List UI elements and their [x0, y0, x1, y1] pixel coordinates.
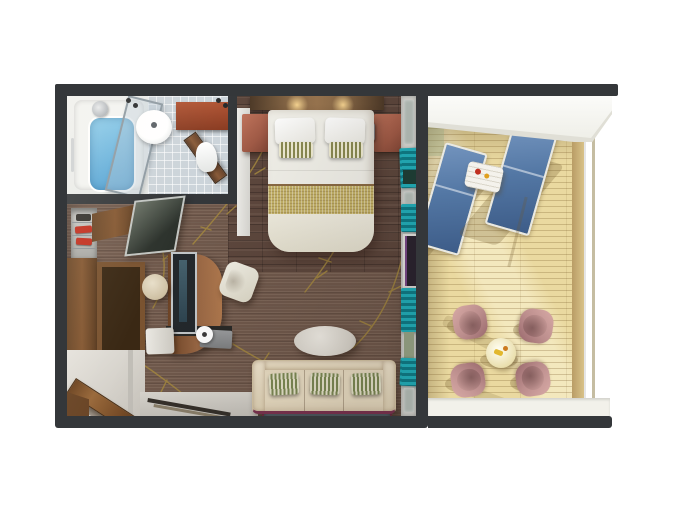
headboard-with-lights	[250, 96, 384, 110]
striped-accent-pillow-right	[329, 142, 363, 158]
deck-front-ledge	[428, 398, 610, 416]
ceiling-spot-3	[216, 98, 221, 103]
deck-edge-board	[572, 116, 584, 398]
white-pillow-left	[275, 117, 316, 144]
curtain-dark-fold	[403, 170, 416, 184]
towel-bar	[71, 138, 74, 172]
sofa-pillow-1	[268, 372, 299, 396]
closet-shelf-3	[72, 248, 96, 249]
railing-inner-line	[584, 116, 586, 398]
double-bed	[268, 110, 374, 252]
duvet-foot	[268, 214, 374, 252]
sofa-back-rail	[265, 361, 383, 370]
glass-panel-1	[404, 100, 414, 144]
drink-yellow	[484, 173, 490, 179]
sofa-pillow-3	[351, 372, 382, 395]
bathroom-right-wall	[228, 96, 237, 204]
duvet-fold-line	[268, 170, 374, 171]
shower-head	[92, 101, 108, 117]
glass-railing-post	[592, 108, 595, 400]
basin-faucet	[151, 122, 157, 128]
sofa-arm-left	[253, 361, 265, 411]
striped-accent-pillow-left	[279, 142, 313, 158]
round-dining-table	[486, 338, 516, 368]
fruit-orange	[503, 346, 508, 351]
speaker-dock	[196, 326, 213, 343]
gold-bed-runner	[268, 184, 374, 218]
veranda	[428, 96, 612, 416]
sofa-seat-divider-2	[343, 370, 344, 411]
sofa-seat-divider-1	[304, 370, 305, 411]
suite-interior	[67, 96, 416, 416]
tv-panel	[171, 252, 197, 334]
closet-red-item-1	[75, 225, 92, 233]
ceiling-spot-2	[133, 103, 138, 108]
entry-door-frame	[128, 350, 133, 416]
vanity-cabinet	[176, 102, 228, 130]
white-drawer	[146, 328, 175, 355]
oval-coffee-table	[294, 326, 356, 356]
wardrobe	[67, 258, 97, 350]
nightstand-right	[374, 114, 404, 152]
glass-panel-2	[404, 192, 414, 204]
floorplan-render	[0, 0, 680, 510]
tv-screen	[179, 260, 187, 322]
teal-curtain-3	[401, 288, 416, 332]
sofa-pillow-2	[310, 372, 341, 395]
teal-curtain-2	[401, 204, 416, 232]
white-pillow-right	[325, 117, 366, 144]
glass-panel-3	[404, 388, 414, 412]
closet-dark-item	[76, 214, 91, 221]
teal-curtain-4	[400, 358, 416, 387]
ceiling-spot-1	[126, 98, 131, 103]
glass-panel-green	[404, 332, 414, 360]
closet-red-item-2	[76, 238, 92, 246]
three-seat-sofa	[252, 360, 396, 414]
stool	[142, 274, 168, 300]
veranda-bottom-wall	[428, 416, 612, 428]
sofa-arm-right	[383, 361, 395, 411]
tray-yellow	[493, 349, 503, 357]
balcony-door	[403, 234, 416, 288]
drink-red	[474, 168, 481, 175]
open-cabinet	[97, 262, 145, 356]
